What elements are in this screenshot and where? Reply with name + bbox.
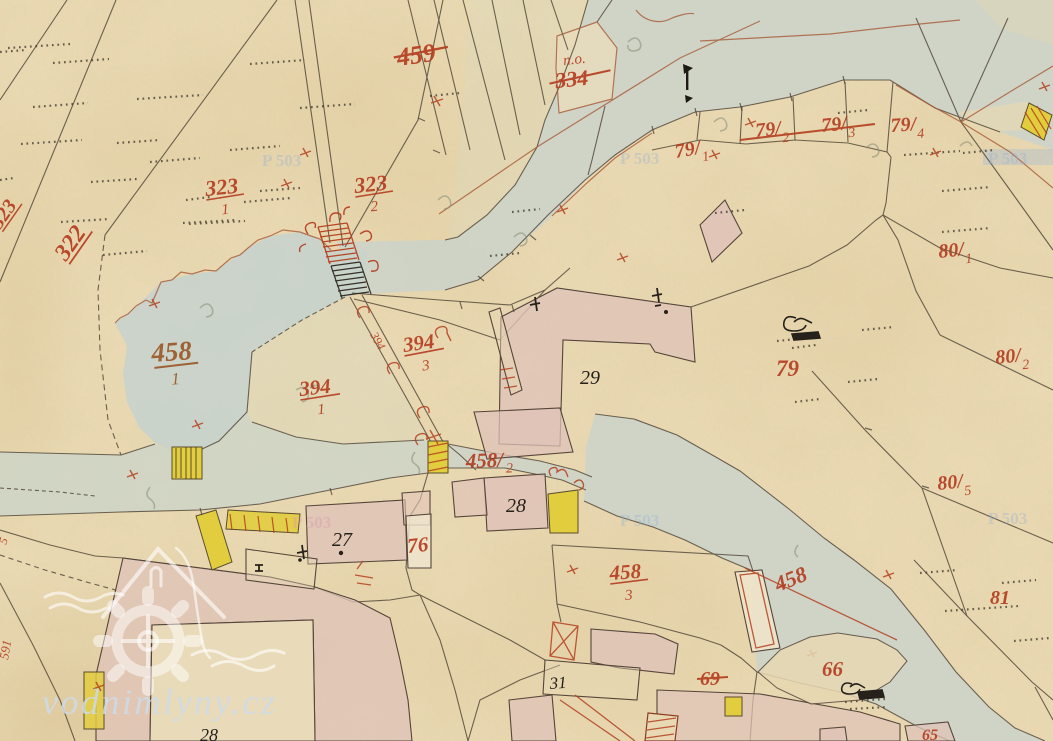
svg-text:P 503: P 503 (620, 511, 659, 530)
svg-text:459: 459 (394, 38, 438, 72)
svg-text:80/: 80/ (936, 470, 966, 495)
svg-text:79/: 79/ (890, 113, 919, 137)
svg-text:P 503: P 503 (988, 509, 1027, 528)
svg-text:458/: 458/ (464, 448, 505, 473)
svg-text:80/: 80/ (994, 344, 1024, 369)
svg-text:28: 28 (506, 495, 526, 517)
svg-text:3: 3 (624, 587, 634, 604)
svg-text:P 503: P 503 (292, 513, 331, 532)
svg-text:P 503: P 503 (262, 151, 301, 170)
svg-text:323: 323 (203, 173, 239, 201)
svg-text:79/: 79/ (820, 112, 850, 137)
svg-text:76: 76 (406, 532, 430, 558)
svg-text:80/: 80/ (937, 238, 967, 263)
svg-text:vodnimlyny.cz: vodnimlyny.cz (42, 682, 277, 722)
svg-text:29: 29 (580, 367, 600, 389)
svg-text:31: 31 (548, 673, 567, 693)
svg-text:P 503: P 503 (620, 149, 659, 168)
svg-text:4: 4 (917, 127, 925, 142)
svg-text:28: 28 (200, 725, 218, 741)
svg-text:n.o.: n.o. (562, 51, 586, 69)
svg-text:323: 323 (352, 170, 388, 198)
svg-text:65: 65 (922, 727, 938, 741)
svg-text:1: 1 (171, 369, 181, 389)
svg-text:P 503: P 503 (988, 149, 1027, 168)
svg-text:66: 66 (822, 657, 844, 681)
svg-text:2: 2 (506, 461, 514, 476)
svg-text:81: 81 (990, 587, 1010, 609)
svg-text:79: 79 (776, 356, 800, 381)
svg-text:27: 27 (332, 529, 353, 551)
